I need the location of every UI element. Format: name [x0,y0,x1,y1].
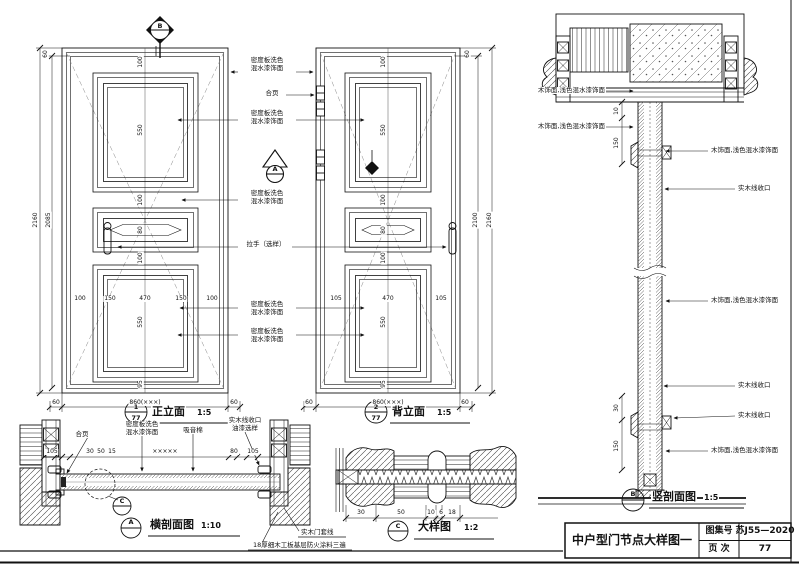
dim-center: 100 [138,193,144,206]
detail-bubble-letter: C [396,523,401,530]
dim-center: 100 [381,193,387,206]
dim-center: 550 [381,123,387,136]
view-scale-hsection: 1:10 [200,522,222,530]
dim-section: ××××× [151,449,178,455]
dim-top-frame: 60 [43,49,49,59]
view-title-front: 正立面 [151,406,186,418]
titleblock-atlas-label: 图集号 [705,527,732,536]
label-mdf-finish: 混水漆饰面 [250,65,285,72]
dim-height-inner: 2085 [46,211,52,228]
dim-panel: 470 [381,296,394,302]
dim-detail: 10 [426,510,436,516]
label-wood-finish: 木饰面,浅色混水漆饰面 [710,447,779,454]
dim-bottom: 60 [460,400,470,406]
dim-detail: 18 [447,510,457,516]
view-scale-vsection: 1:5 [703,494,719,502]
dim-panel: 105 [434,296,447,302]
detail-bubble-letter: C [120,498,125,505]
dim-height-outer: 2160 [487,211,493,228]
label-solid-trim: 实木线收口 [737,382,772,389]
dim-section: 105 [45,449,58,455]
titleblock-atlas-value: 苏J55—2020 [736,527,795,536]
label-mdf-finish: 混水漆饰面 [250,309,285,316]
view-scale-detail: 1:2 [463,524,479,532]
section-marker-b-small [365,150,379,175]
front-elevation-drawing [36,16,253,423]
titleblock-drawing-title: 中户型门节点大样图一 [572,534,692,547]
dim-center: 100 [138,251,144,264]
dim-vsection: 10 [614,106,620,116]
dim-height-inner: 2100 [473,211,479,228]
label-wood-finish: 木饰面,浅色混水漆饰面 [710,147,779,154]
dim-detail: 30 [356,510,366,516]
drawing-linework [0,0,799,566]
label-hinge: 合页 [265,90,280,97]
view-bubble-number: 1 [134,404,139,411]
view-bubble-number: 2 [374,404,379,411]
dim-bottom: 60 [304,400,314,406]
view-title-detail: 大样图 [417,521,452,533]
label-hinge: 合页 [75,431,90,438]
label-trim-paint: 油漆选样 [231,425,259,432]
label-mdf-finish: 混水漆饰面 [250,118,285,125]
dim-center: 80 [138,225,144,235]
dim-vsection: 150 [614,136,620,149]
dim-bottom: 60 [51,400,61,406]
section-bubble-letter: A [128,519,133,526]
dim-center: 100 [138,55,144,68]
label-wood-finish: 木饰面,浅色混水漆饰面 [532,87,606,94]
view-bubble-page: 77 [371,415,380,422]
dim-center: 100 [381,251,387,264]
view-title-vsection: 竖剖面图 [651,491,697,503]
dim-top-frame: 60 [465,49,471,59]
dim-section: 30 [85,449,95,455]
label-absorbent: 吸音棉 [182,427,204,434]
label-handle: 拉手（选样） [246,241,287,248]
dim-section: 50 [96,449,106,455]
dim-center: 80 [381,225,387,235]
label-solid-trim: 实木线收口 [737,185,772,192]
dim-section: 105 [246,449,259,455]
back-elevation-drawing [301,45,496,423]
dim-panel: 470 [138,296,151,302]
view-title-hsection: 横剖面图 [149,519,195,531]
dim-vsection: 30 [614,403,620,413]
dim-panel: 150 [103,296,116,302]
dim-detail: 50 [396,510,406,516]
label-mdf-finish: 混水漆饰面 [250,336,285,343]
dim-panel: 100 [205,296,218,302]
titleblock-page-label: 页 次 [708,545,729,554]
label-mdf-finish: 混水漆饰面 [125,429,160,436]
dim-center: 100 [381,55,387,68]
dim-center: 550 [381,315,387,328]
dim-panel: 105 [329,296,342,302]
dim-height-outer: 2160 [33,211,39,228]
dim-vsection: 150 [614,439,620,452]
dim-center: 550 [138,315,144,328]
label-casing: 实木门套线 [300,529,335,536]
dim-panel: 100 [73,296,86,302]
label-wood-finish: 木饰面,浅色混水漆饰面 [532,123,606,130]
label-solid-trim: 实木线收口 [737,412,772,419]
dim-center: 95 [138,379,144,389]
door-handle [449,223,456,255]
view-scale-back: 1:5 [436,409,452,417]
titleblock-page-value: 77 [759,545,772,554]
view-title-back: 背立面 [391,406,426,418]
dim-center: 95 [381,379,387,389]
dim-bottom: 60 [229,400,239,406]
dim-center: 550 [138,123,144,136]
dim-panel: 150 [174,296,187,302]
section-marker-b-letter: B [158,23,163,30]
label-base-layer: 18厚细木工板基层防火涂料三遍 [252,542,347,549]
view-scale-front: 1:5 [196,409,212,417]
section-marker-a-letter: A [272,166,277,173]
drawing-sheet: 2160 2085 60 60 860(×××) 60 100 150 470 … [0,0,799,566]
door-handle [104,223,111,255]
dim-section: 80 [229,449,239,455]
dim-detail: 6 [438,510,444,516]
dim-section: 15 [107,449,117,455]
section-bubble-letter: B [631,491,636,498]
label-wood-finish: 木饰面,浅色混水漆饰面 [710,297,779,304]
label-mdf-finish: 混水漆饰面 [250,198,285,205]
